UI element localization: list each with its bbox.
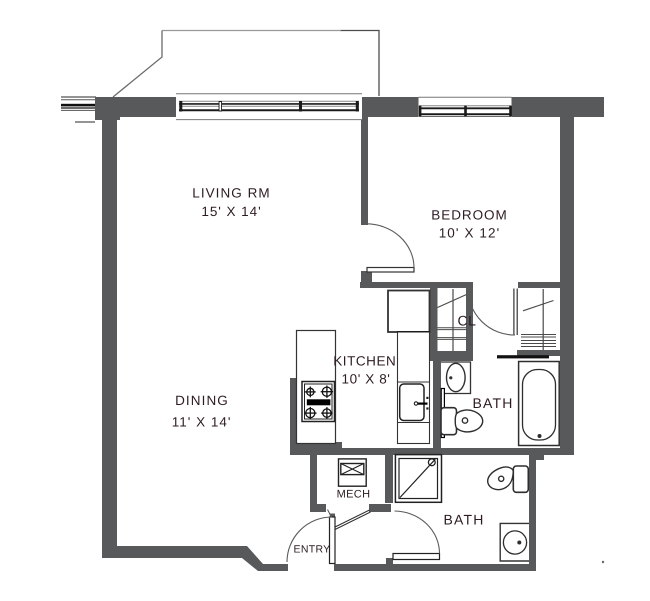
- svg-text:15' X 14': 15' X 14': [201, 204, 261, 219]
- svg-text:10' X 8': 10' X 8': [342, 372, 391, 387]
- svg-text:11' X 14': 11' X 14': [172, 415, 232, 430]
- svg-text:MECH: MECH: [337, 489, 371, 501]
- svg-text:KITCHEN: KITCHEN: [333, 354, 396, 369]
- svg-text:10' X 12': 10' X 12': [439, 226, 501, 241]
- svg-text:DINING: DINING: [175, 393, 229, 408]
- svg-text:BATH: BATH: [472, 395, 513, 411]
- svg-text:BATH: BATH: [443, 512, 484, 528]
- svg-text:ENTRY: ENTRY: [294, 544, 331, 556]
- svg-text:LIVING RM: LIVING RM: [192, 186, 270, 201]
- svg-text:BEDROOM: BEDROOM: [431, 208, 507, 223]
- svg-text:CL: CL: [457, 313, 476, 329]
